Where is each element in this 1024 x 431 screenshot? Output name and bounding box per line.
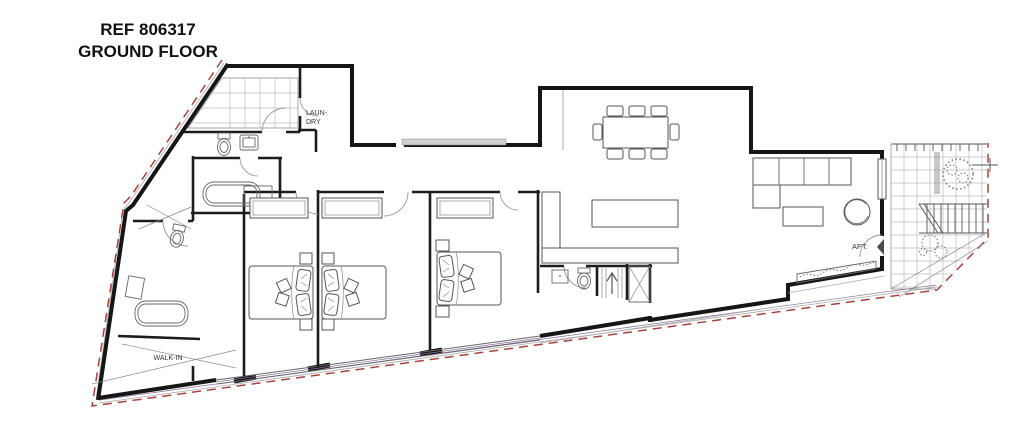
south-glazing-inner	[217, 340, 540, 384]
dining-chair	[670, 124, 679, 140]
laundry-label-line1: LAUN-	[306, 110, 328, 117]
kitchen-counter-vertical	[542, 192, 560, 248]
garden-stairs	[919, 204, 987, 233]
floor-name-label: GROUND FLOOR	[78, 42, 218, 61]
living-room: APT.	[753, 158, 884, 283]
garden-wall-stub	[934, 152, 940, 194]
toilet	[169, 224, 186, 249]
floor-plan-page: REF 806317 GROUND FLOOR	[0, 0, 1024, 431]
toilet	[218, 133, 231, 156]
dining-chair	[593, 124, 602, 140]
bed	[249, 266, 313, 319]
nightstand	[300, 319, 312, 330]
bathtub	[135, 301, 188, 326]
nightstand	[436, 306, 449, 317]
guest-wc	[552, 268, 591, 289]
armchair	[844, 199, 870, 225]
dining-chair	[607, 106, 623, 116]
ensuite-bathroom	[125, 224, 188, 326]
south-glazing-outer	[216, 336, 540, 380]
nightstand	[300, 253, 312, 264]
dining-area	[593, 106, 679, 159]
elevator-shaft	[629, 266, 650, 302]
west-diagonal-wall	[98, 64, 228, 400]
south-stepped-walls	[540, 269, 882, 336]
bed	[322, 266, 386, 319]
plan-title: REF 806317 GROUND FLOOR	[78, 20, 218, 61]
dining-chair	[629, 106, 645, 116]
basin	[240, 135, 258, 150]
dining-chair	[607, 149, 623, 159]
window-sill	[402, 139, 506, 145]
laundry-label-line2: DRY	[306, 119, 321, 126]
terrace-west-edge	[891, 144, 936, 289]
vanity-unit	[125, 276, 144, 299]
walk-in-closet: WALK-IN	[92, 344, 236, 384]
laundry-room: LAUN- DRY	[306, 110, 328, 126]
entrance-door-icon	[877, 239, 884, 255]
north-walls	[226, 64, 882, 154]
bedroom-2	[322, 198, 386, 330]
nightstand	[322, 253, 334, 264]
pavement-edge-bottom	[99, 287, 937, 403]
bedroom-3	[436, 198, 501, 317]
closet-sketch-lines	[92, 344, 236, 384]
bathroom-top	[218, 133, 259, 156]
exterior-walls	[98, 64, 886, 400]
nightstand	[322, 319, 334, 330]
coffee-table	[783, 207, 823, 226]
wardrobe	[437, 198, 493, 218]
toilet	[578, 268, 591, 289]
sofa	[753, 158, 851, 208]
kitchen-counter-horizontal	[542, 248, 678, 263]
right-terrace	[891, 144, 998, 297]
dining-chair	[651, 106, 667, 116]
bed	[437, 252, 501, 305]
ref-number-label: REF 806317	[100, 20, 195, 39]
walk-in-label: WALK-IN	[154, 355, 183, 362]
floor-plan-canvas: REF 806317 GROUND FLOOR	[0, 0, 1024, 431]
apartment-label: APT.	[852, 242, 868, 251]
wardrobe	[322, 198, 382, 218]
bedroom-1	[249, 198, 313, 330]
wardrobe	[250, 198, 308, 218]
kitchen-island	[592, 200, 678, 227]
dining-table	[603, 117, 668, 148]
tree-symbol	[943, 159, 973, 189]
south-glazing-accent	[216, 338, 540, 382]
dining-chair	[629, 149, 645, 159]
railing-ticks	[897, 144, 978, 151]
staircase	[602, 268, 622, 298]
nightstand	[436, 240, 449, 251]
dining-chair	[651, 149, 667, 159]
pavement-edge-left	[96, 63, 224, 399]
